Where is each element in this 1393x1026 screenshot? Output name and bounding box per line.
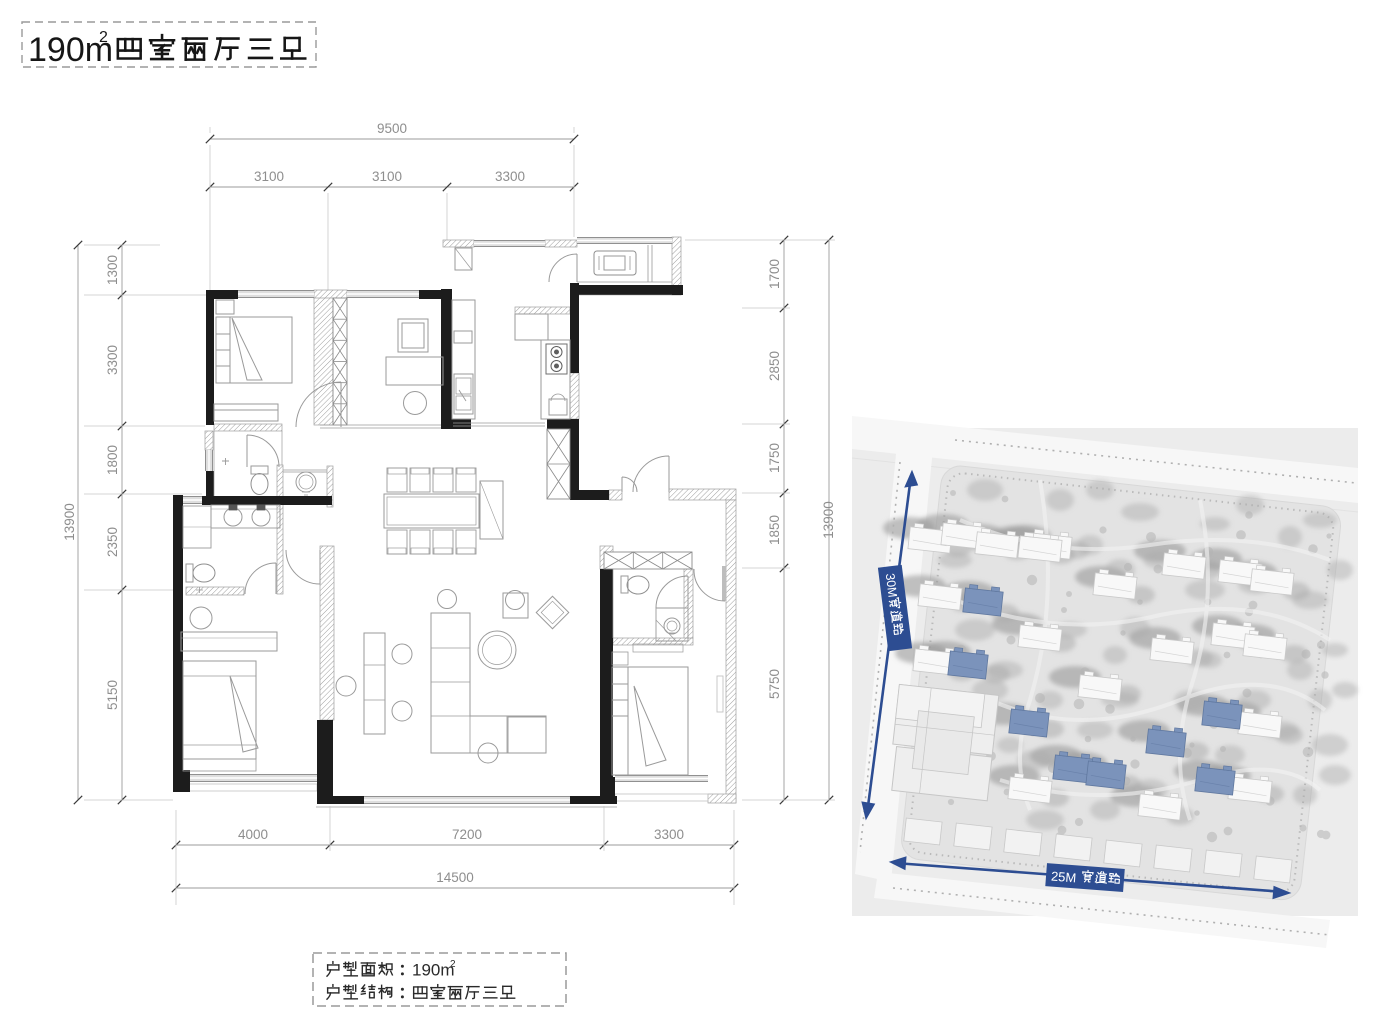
svg-text:3100: 3100 [254,169,284,184]
svg-text:4000: 4000 [238,827,268,842]
svg-text:9500: 9500 [377,121,407,136]
svg-text:25M: 25M [1050,869,1076,886]
svg-text:3100: 3100 [372,169,402,184]
svg-text:30M: 30M [883,573,900,599]
svg-text:13900: 13900 [62,503,77,541]
svg-text:190m: 190m [412,961,455,980]
svg-text:2: 2 [99,29,108,46]
svg-text:14500: 14500 [436,870,474,885]
svg-text:2: 2 [450,959,456,970]
svg-text:5750: 5750 [767,669,782,699]
svg-text:1850: 1850 [767,515,782,545]
svg-text:3300: 3300 [105,345,120,375]
svg-text:2850: 2850 [767,351,782,381]
svg-text:3300: 3300 [654,827,684,842]
svg-text:1700: 1700 [767,259,782,289]
svg-text:2350: 2350 [105,527,120,557]
svg-text:5150: 5150 [105,680,120,710]
svg-text:1750: 1750 [767,443,782,473]
svg-text:1800: 1800 [105,445,120,475]
svg-text:7200: 7200 [452,827,482,842]
svg-text:3300: 3300 [495,169,525,184]
svg-text:1300: 1300 [105,255,120,285]
svg-text:13900: 13900 [821,501,836,539]
